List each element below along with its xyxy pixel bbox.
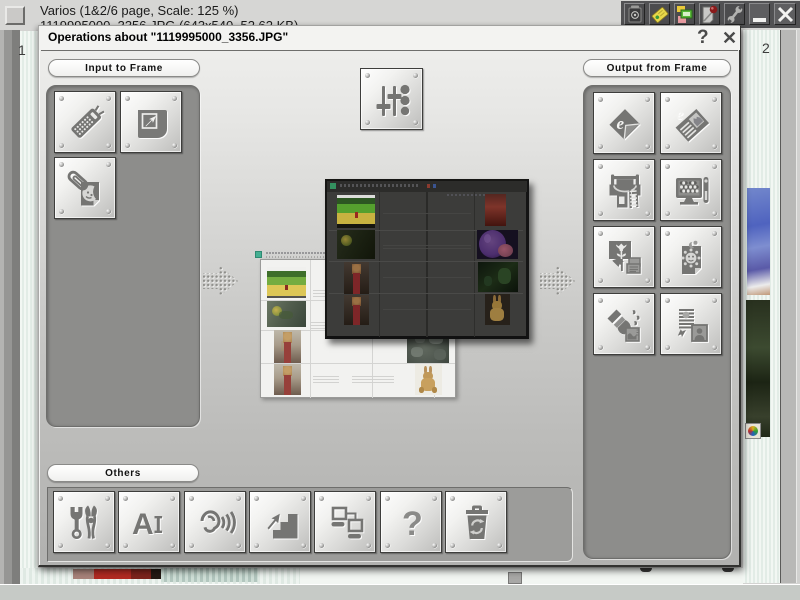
svg-text:e: e: [617, 114, 625, 133]
svg-text:?: ?: [402, 505, 423, 543]
svg-text:e: e: [676, 106, 683, 123]
svg-text:A: A: [132, 508, 154, 541]
